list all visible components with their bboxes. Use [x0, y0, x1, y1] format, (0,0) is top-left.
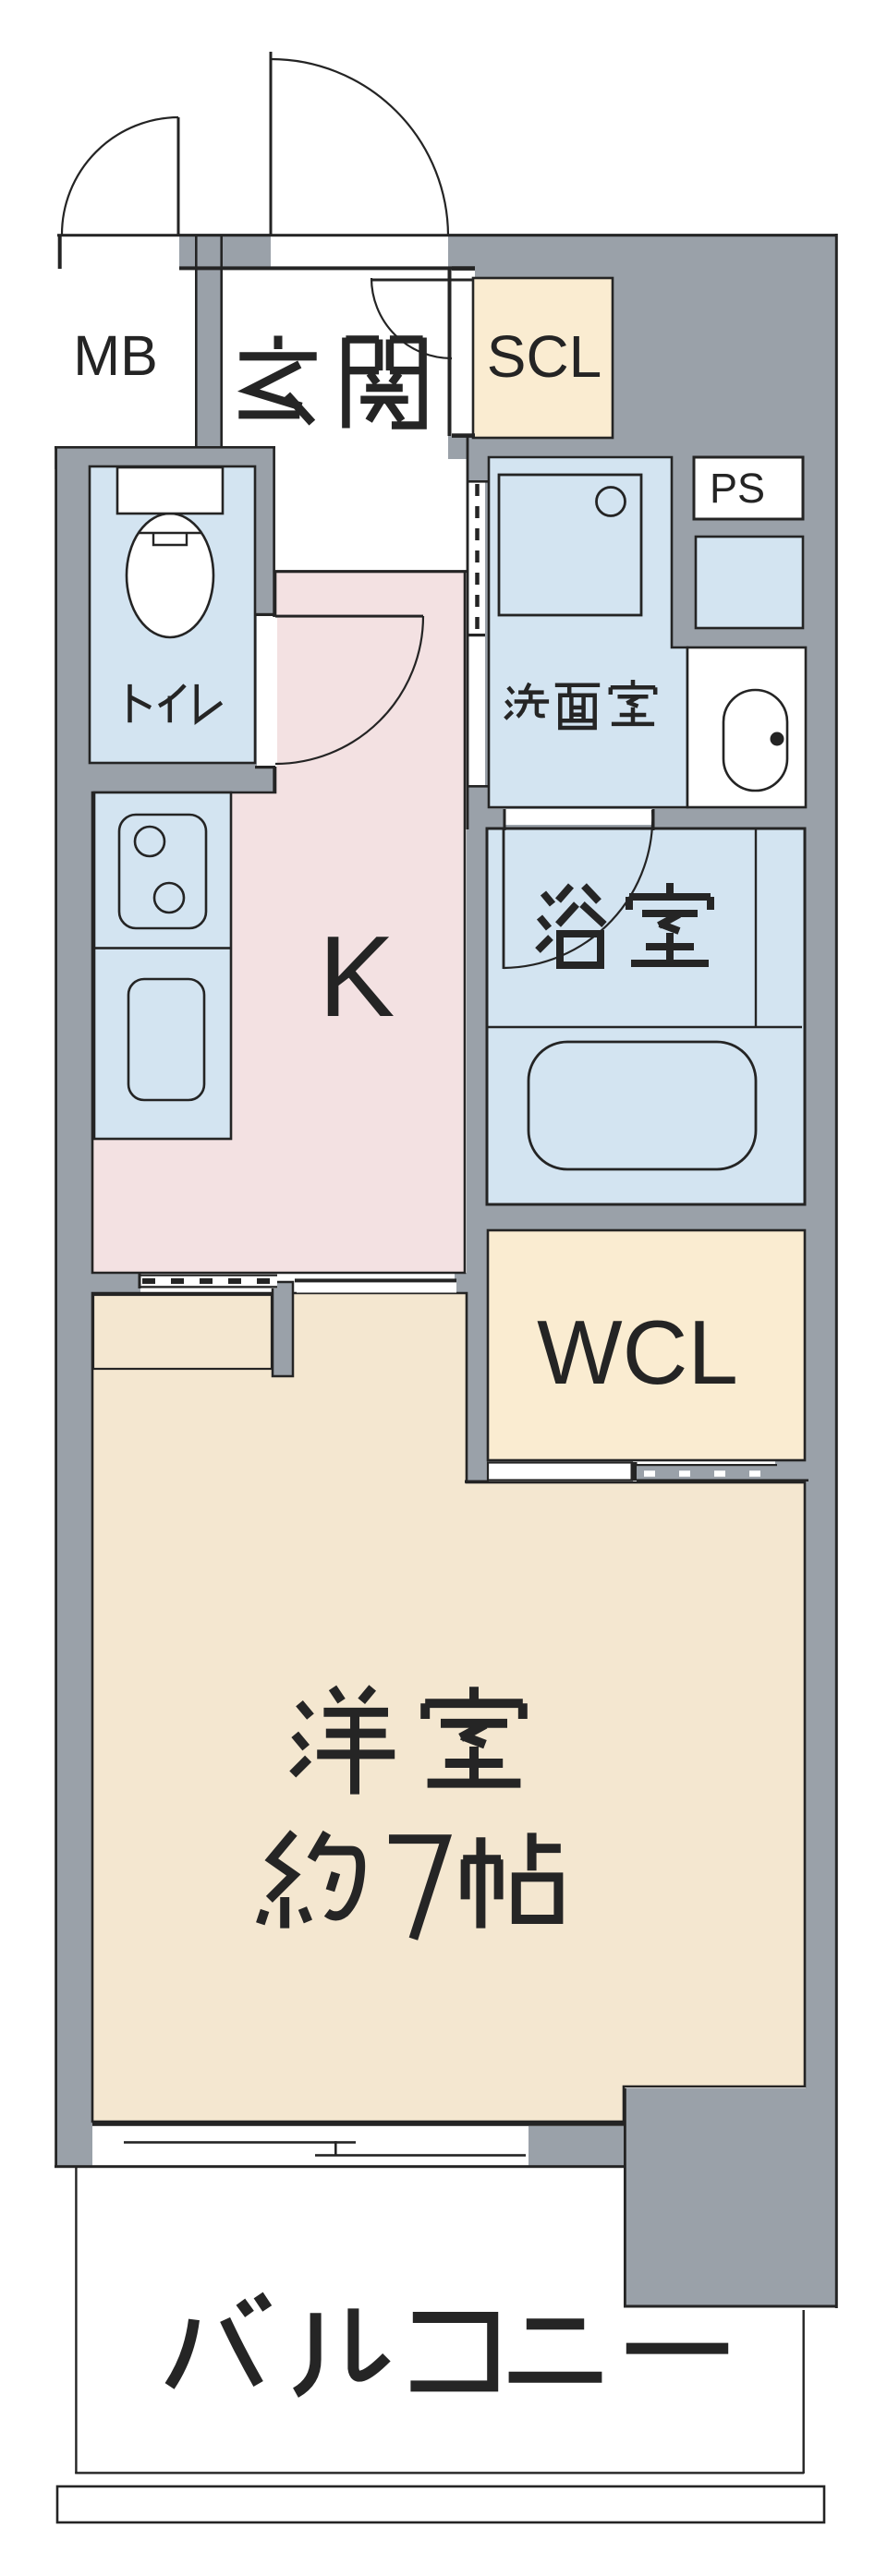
svg-text:K: K: [319, 913, 395, 1041]
svg-text:MB: MB: [73, 324, 158, 387]
svg-text:PS: PS: [710, 465, 765, 512]
svg-text:WCL: WCL: [537, 1301, 738, 1403]
svg-text:SCL: SCL: [487, 323, 602, 390]
